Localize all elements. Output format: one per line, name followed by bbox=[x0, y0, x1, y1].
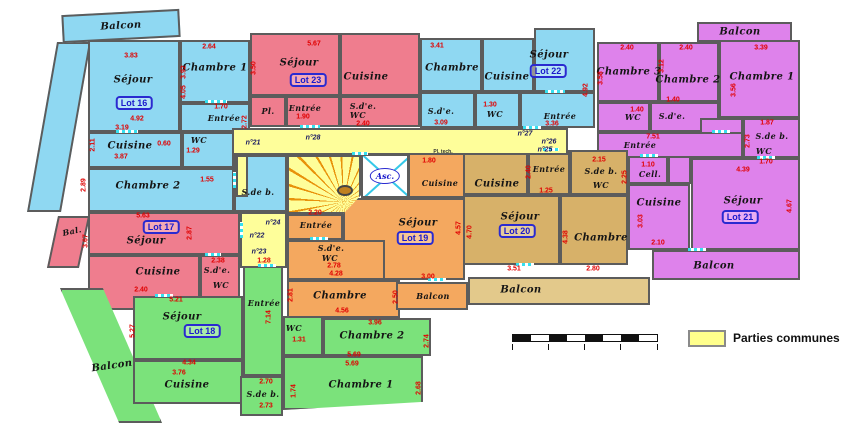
door-number: n°25 bbox=[538, 147, 553, 154]
room-lot20-chambre bbox=[560, 195, 628, 265]
dimension-label: 2.87 bbox=[187, 226, 194, 240]
dimension-label: 2.10 bbox=[651, 240, 665, 247]
room-label: S.de b. bbox=[756, 131, 789, 141]
room-lot20-balcon bbox=[468, 277, 650, 305]
dimension-label: 2.78 bbox=[327, 263, 341, 270]
room-label: Chambre 1 bbox=[183, 63, 248, 74]
dimension-label: 4.05 bbox=[181, 85, 188, 99]
room-label: WC bbox=[593, 180, 609, 190]
dimension-label: 2.68 bbox=[416, 381, 423, 395]
dimension-label: 2.89 bbox=[81, 178, 88, 192]
dimension-label: 2.72 bbox=[242, 115, 249, 129]
dimension-label: 3.51 bbox=[507, 266, 521, 273]
dimension-label: 3.19 bbox=[115, 125, 129, 132]
lot-badge: Lot 17 bbox=[143, 220, 180, 234]
door-number: n°24 bbox=[266, 220, 281, 227]
room-label: Chambre 2 bbox=[116, 181, 181, 192]
room-label: Balcon bbox=[416, 291, 449, 301]
room-label: Cuisine bbox=[136, 267, 181, 278]
room-label: WC bbox=[191, 135, 207, 145]
scale-tick bbox=[584, 344, 585, 350]
room-label: Cuisine bbox=[422, 178, 458, 188]
room-label: Entrée bbox=[300, 220, 332, 230]
room-label: Balcon bbox=[719, 27, 760, 38]
dimension-label: 2.73 bbox=[745, 134, 752, 148]
scale-tick bbox=[620, 344, 621, 350]
dimension-label: 4.38 bbox=[563, 230, 570, 244]
room-label: Balcon bbox=[100, 19, 142, 32]
dimension-label: 3.92 bbox=[181, 65, 188, 79]
room-label: Cuisine bbox=[637, 198, 682, 209]
room-label: Entrée bbox=[208, 113, 240, 123]
dimension-label: 2.40 bbox=[134, 287, 148, 294]
legend-label: Parties communes bbox=[733, 331, 840, 345]
room-label: WC bbox=[487, 109, 503, 119]
door-opening bbox=[233, 172, 236, 188]
dimension-label: 4.92 bbox=[583, 83, 590, 97]
dimension-label: 3.76 bbox=[172, 370, 186, 377]
dimension-label: 2.40 bbox=[356, 121, 370, 128]
dimension-label: 2.50 bbox=[393, 290, 400, 304]
dimension-label: 3.03 bbox=[638, 214, 645, 228]
staircase bbox=[287, 155, 361, 214]
dimension-label: 2.70 bbox=[259, 379, 273, 386]
legend-swatch bbox=[688, 330, 726, 347]
dimension-label: 3.39 bbox=[754, 45, 768, 52]
room-label: S.d'e. bbox=[318, 243, 345, 253]
dimension-label: 2.40 bbox=[679, 45, 693, 52]
dimension-label: 3.58 bbox=[598, 71, 605, 85]
dimension-label: 1.55 bbox=[200, 177, 214, 184]
room-lot22-cuisine bbox=[482, 38, 534, 92]
room-label: Balcon bbox=[500, 285, 541, 296]
dimension-label: 1.70 bbox=[759, 159, 773, 166]
room-label: Pl. bbox=[261, 106, 274, 116]
dimension-label: 4.67 bbox=[787, 199, 794, 213]
room-label: WC bbox=[213, 280, 229, 290]
door-opening bbox=[300, 125, 320, 128]
dimension-label: 1.30 bbox=[483, 102, 497, 109]
door-opening bbox=[352, 152, 368, 155]
dimension-label: 3.00 bbox=[421, 274, 435, 281]
lot-badge: Lot 16 bbox=[116, 96, 153, 110]
dimension-label: 3.50 bbox=[251, 61, 258, 75]
door-opening bbox=[240, 222, 243, 238]
door-opening bbox=[310, 237, 328, 240]
dimension-label: 2.20 bbox=[308, 210, 322, 217]
room-label: Séjour bbox=[399, 218, 438, 229]
door-opening bbox=[205, 253, 221, 256]
room-lot18-entree bbox=[243, 266, 283, 376]
dimension-label: 1.25 bbox=[539, 188, 553, 195]
room-label: Chambre 3 bbox=[597, 67, 662, 78]
lot-badge: Lot 22 bbox=[530, 64, 567, 78]
stair-steps bbox=[289, 157, 359, 212]
dimension-label: 3.56 bbox=[731, 83, 738, 97]
door-number: n°22 bbox=[250, 233, 265, 240]
dimension-label: 3.41 bbox=[430, 43, 444, 50]
room-label: Cuisine bbox=[475, 179, 520, 190]
dimension-label: 1.29 bbox=[186, 148, 200, 155]
dimension-label: 3.36 bbox=[545, 121, 559, 128]
dimension-label: 1.28 bbox=[257, 258, 271, 265]
room-label: Cell. bbox=[639, 169, 661, 179]
room-label: Entrée bbox=[533, 164, 565, 174]
room-label: Séjour bbox=[724, 196, 763, 207]
dimension-label: 1.74 bbox=[291, 384, 298, 398]
room-lot19-cuisine bbox=[408, 150, 465, 198]
room-label: Séjour bbox=[501, 212, 540, 223]
dimension-label: 5.69 bbox=[345, 361, 359, 368]
dimension-label: 4.70 bbox=[467, 225, 474, 239]
dimension-label: 3.96 bbox=[368, 320, 382, 327]
room-label: Entrée bbox=[289, 103, 321, 113]
room-lot21-fill bbox=[668, 156, 691, 184]
dimension-label: 4.92 bbox=[130, 116, 144, 123]
room-label: Balcon bbox=[693, 261, 734, 272]
room-label: Cuisine bbox=[344, 72, 389, 83]
door-number: n°26 bbox=[542, 139, 557, 146]
dimension-label: 0.60 bbox=[157, 141, 171, 148]
dimension-label: 4.34 bbox=[182, 360, 196, 367]
room-label: WC bbox=[322, 253, 338, 263]
elevator: Asc. bbox=[361, 154, 409, 198]
room-label: Séjour bbox=[530, 50, 569, 61]
dimension-label: 2.25 bbox=[622, 170, 629, 184]
lot-badge: Lot 21 bbox=[722, 210, 759, 224]
dimension-label: 1.87 bbox=[760, 120, 774, 127]
dimension-label: 7.14 bbox=[266, 310, 273, 324]
room-label: Entrée bbox=[544, 111, 576, 121]
dimension-label: 7.51 bbox=[646, 134, 660, 141]
room-label: Chambre bbox=[313, 291, 367, 302]
room-label: Séjour bbox=[280, 58, 319, 69]
dimension-label: 3.12 bbox=[659, 59, 666, 73]
room-label: S.d'e. bbox=[204, 265, 231, 275]
room-label: Chambre bbox=[574, 233, 628, 244]
dimension-label: 1.10 bbox=[641, 162, 655, 169]
dimension-label: 4.56 bbox=[335, 308, 349, 315]
room-label: Chambre 2 bbox=[340, 331, 405, 342]
room-label: Chambre 2 bbox=[656, 75, 721, 86]
room-label: Cuisine bbox=[165, 380, 210, 391]
room-label: S.de b. bbox=[242, 187, 275, 197]
room-label: S.de b. bbox=[585, 166, 618, 176]
dimension-label: 3.09 bbox=[434, 120, 448, 127]
room-label: Entrée bbox=[248, 298, 280, 308]
room-label: Entrée bbox=[624, 140, 656, 150]
dimension-label: 1.40 bbox=[630, 107, 644, 114]
door-number: n°23 bbox=[252, 249, 267, 256]
dimension-label: 1.90 bbox=[296, 114, 310, 121]
door-opening bbox=[640, 154, 658, 157]
dimension-label: 2.80 bbox=[586, 266, 600, 273]
room-lot23-cuisine bbox=[340, 33, 420, 96]
room-label: WC bbox=[756, 146, 772, 156]
room-label: Cuisine bbox=[485, 72, 530, 83]
dimension-label: 4.39 bbox=[736, 167, 750, 174]
dimension-label: 1.80 bbox=[422, 158, 436, 165]
room-label: WC bbox=[625, 112, 641, 122]
lot-badge: Lot 18 bbox=[184, 324, 221, 338]
door-number: n°21 bbox=[246, 140, 261, 147]
door-opening bbox=[688, 248, 706, 251]
scale-tick bbox=[657, 344, 658, 350]
dimension-label: 2.74 bbox=[424, 334, 431, 348]
dimension-label: 1.40 bbox=[666, 97, 680, 104]
room-label: S.d'e. bbox=[659, 111, 686, 121]
elevator-label: Asc. bbox=[370, 168, 400, 184]
dimension-label: 2.40 bbox=[526, 165, 533, 179]
door-number: n°28 bbox=[306, 135, 321, 142]
dimension-label: 3.83 bbox=[124, 53, 138, 60]
dimension-label: 5.63 bbox=[136, 213, 150, 220]
room-label: WC bbox=[286, 323, 302, 333]
room-label: Chambre 1 bbox=[329, 380, 394, 391]
dimension-label: 3.87 bbox=[114, 154, 128, 161]
dimension-label: 1.70 bbox=[214, 104, 228, 111]
dimension-label: 2.38 bbox=[211, 258, 225, 265]
dimension-label: 1.31 bbox=[292, 337, 306, 344]
dimension-label: 4.28 bbox=[329, 271, 343, 278]
room-label: WC bbox=[350, 110, 366, 120]
lot-badge: Lot 20 bbox=[499, 224, 536, 238]
dimension-label: 2.15 bbox=[592, 157, 606, 164]
dimension-label: 2.81 bbox=[288, 288, 295, 302]
door-opening bbox=[712, 130, 730, 133]
stair-newel bbox=[337, 185, 353, 196]
dimension-label: 5.67 bbox=[307, 41, 321, 48]
dimension-label: 4.57 bbox=[456, 221, 463, 235]
dimension-label: 5.69 bbox=[347, 352, 361, 359]
room-label: Pl. tech. bbox=[433, 149, 452, 155]
dimension-label: 3.67 bbox=[83, 234, 90, 248]
room-label: Chambre bbox=[425, 63, 479, 74]
lot-badge: Lot 23 bbox=[290, 73, 327, 87]
dimension-label: 2.11 bbox=[90, 138, 97, 151]
lot-badge: Lot 19 bbox=[397, 231, 434, 245]
room-label: S.d'e. bbox=[428, 106, 455, 116]
dimension-label: 5.21 bbox=[169, 297, 183, 304]
floor-plan: Asc. Balcon Séjour Chambre 1 Entrée Cuis… bbox=[0, 0, 855, 430]
dimension-label: 5.27 bbox=[130, 324, 137, 338]
dimension-label: 2.40 bbox=[620, 45, 634, 52]
dimension-label: 2.64 bbox=[202, 44, 216, 51]
room-label: Chambre 1 bbox=[730, 72, 795, 83]
scale-tick bbox=[548, 344, 549, 350]
room-label: Séjour bbox=[114, 75, 153, 86]
door-opening bbox=[545, 90, 565, 93]
door-number: n°27 bbox=[518, 131, 533, 138]
room-label: Cuisine bbox=[108, 141, 153, 152]
room-label: Séjour bbox=[127, 236, 166, 247]
room-label: S.de b. bbox=[247, 389, 280, 399]
door-opening bbox=[523, 126, 541, 129]
dimension-label: 2.73 bbox=[259, 403, 273, 410]
scale-bar bbox=[512, 334, 658, 342]
room-label: Séjour bbox=[163, 312, 202, 323]
scale-tick bbox=[512, 344, 513, 350]
